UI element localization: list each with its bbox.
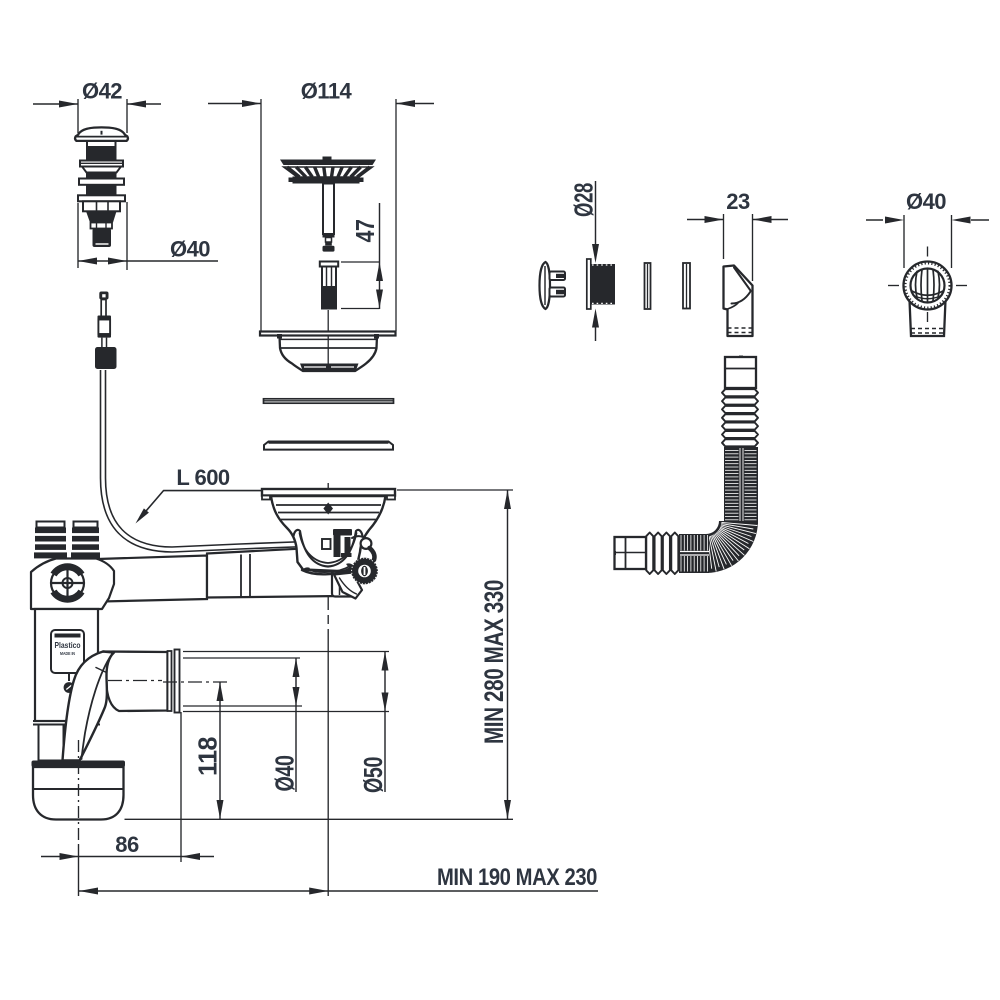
svg-text:Ø40: Ø40 bbox=[906, 189, 946, 214]
svg-text:L 600: L 600 bbox=[176, 465, 230, 490]
svg-text:MIN 280 MAX 330: MIN 280 MAX 330 bbox=[479, 580, 509, 744]
svg-text:23: 23 bbox=[726, 189, 750, 214]
svg-text:MIN 190 MAX 230: MIN 190 MAX 230 bbox=[437, 864, 597, 891]
svg-text:Plastico: Plastico bbox=[55, 641, 81, 650]
svg-text:Ø114: Ø114 bbox=[301, 79, 353, 104]
svg-text:86: 86 bbox=[115, 832, 139, 857]
svg-text:Ø40: Ø40 bbox=[170, 237, 210, 262]
svg-text:Ø42: Ø42 bbox=[82, 79, 122, 104]
svg-text:Ø50: Ø50 bbox=[358, 757, 388, 793]
svg-text:Ø40: Ø40 bbox=[270, 755, 300, 791]
svg-text:MADE IN: MADE IN bbox=[60, 651, 76, 656]
svg-text:Ø28: Ø28 bbox=[569, 183, 599, 217]
svg-text:118: 118 bbox=[193, 737, 223, 776]
svg-text:47: 47 bbox=[350, 219, 380, 242]
